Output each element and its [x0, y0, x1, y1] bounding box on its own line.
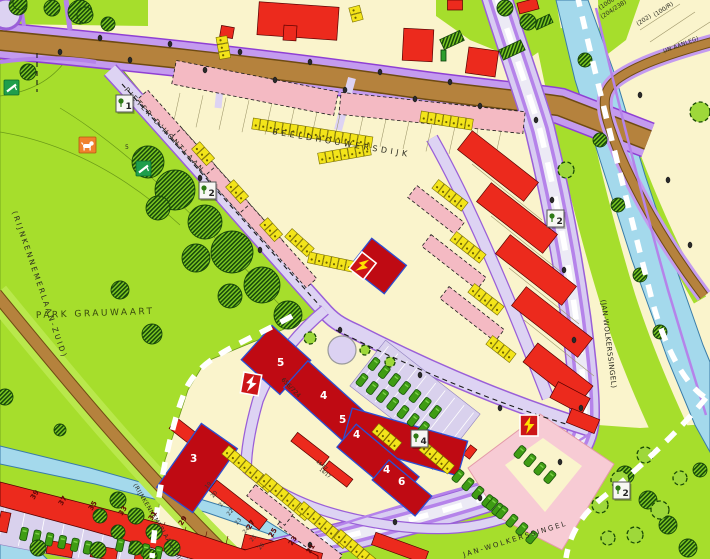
map-marker: 2 [547, 210, 566, 229]
lamp-post-icon [203, 67, 207, 73]
parking-stall [216, 36, 228, 45]
lamp-post-icon [579, 405, 583, 411]
building-red [283, 25, 297, 41]
lamp-post-icon [550, 197, 554, 203]
marker-number: 4 [421, 437, 427, 447]
tree-outlined [690, 102, 710, 122]
tree-hatched [111, 281, 129, 299]
tree-hatched [77, 7, 93, 23]
parking-stall [259, 119, 268, 131]
lamp-post-icon [58, 49, 62, 55]
lamp-post-icon [448, 79, 452, 85]
marker-number: 1 [126, 102, 132, 112]
map-marker: 2 [199, 182, 218, 201]
tree-hatched [54, 424, 66, 436]
marker-number: 2 [623, 489, 629, 499]
tree-hatched [146, 196, 170, 220]
lamp-post-icon [338, 327, 342, 333]
map-marker: 4 [411, 430, 430, 449]
lamp-post-icon [478, 103, 482, 109]
tree-hatched [128, 508, 144, 524]
tree-hatched [20, 64, 36, 80]
tree-hatched [520, 14, 536, 30]
map-marker: 2 [613, 482, 632, 501]
tree-glyph-icon [615, 485, 620, 490]
tree-outlined [651, 501, 669, 519]
lamp-post-icon [413, 96, 417, 102]
tree-hatched [188, 205, 222, 239]
lamp-post-icon [666, 177, 670, 183]
marker-number: 2 [557, 217, 563, 227]
tree-hatched [101, 17, 115, 31]
parking-stall [340, 148, 349, 160]
traffic-sign-icon [441, 50, 446, 61]
tree-hatched [90, 542, 106, 558]
tree-outlined [385, 357, 395, 367]
map-marker: 1 [116, 95, 135, 114]
tree-hatched [0, 389, 13, 405]
storey-number: 4 [320, 390, 327, 402]
lamp-post-icon [238, 49, 242, 55]
tree-glyph-icon [413, 433, 418, 438]
tree-outlined [673, 471, 687, 485]
tree-hatched [274, 301, 302, 329]
turning-circle [328, 336, 356, 364]
tree-outlined [627, 527, 643, 543]
parking-stall [325, 151, 334, 163]
parking-stall [219, 51, 231, 60]
storey-number: 5 [339, 414, 346, 426]
lamp-post-icon [478, 495, 482, 501]
parking-stall [420, 111, 429, 123]
lamp-post-icon [688, 242, 692, 248]
tree-glyph-icon [118, 98, 123, 103]
playground-icon [4, 80, 19, 95]
playground-icon [136, 161, 151, 176]
building-red [257, 2, 339, 41]
dog-walking-area-icon [79, 137, 96, 153]
lamp-post-icon [258, 247, 262, 253]
tree-hatched [211, 231, 253, 273]
lamp-post-icon [308, 59, 312, 65]
tree-hatched [679, 539, 697, 557]
map-canvas[interactable]: BEELDHOUWERSDIJKPIETER-D'HONTLAANPARK GR… [0, 0, 710, 559]
lamp-post-icon [418, 372, 422, 378]
tree-hatched [593, 133, 607, 147]
parking-stall [333, 149, 342, 161]
lamp-post-icon [198, 175, 202, 181]
storey-number: 5 [277, 357, 284, 369]
parcel-label: 5 [125, 144, 129, 151]
lamp-post-icon [562, 267, 566, 273]
parking-stall [450, 116, 459, 128]
tree-outlined [558, 162, 574, 178]
marker-number: 2 [209, 189, 215, 199]
tree-hatched [93, 509, 107, 523]
lamp-post-icon [128, 57, 132, 63]
lamp-post-icon [498, 405, 502, 411]
lamp-post-icon [168, 41, 172, 47]
tree-hatched [218, 284, 242, 308]
lamp-post-icon [273, 77, 277, 83]
tree-hatched [30, 540, 46, 556]
tree-hatched [693, 463, 707, 477]
tree-hatched [111, 525, 125, 539]
lamp-post-icon [343, 87, 347, 93]
transformer-lightning-icon [520, 415, 538, 436]
tree-outlined [601, 531, 615, 545]
lamp-post-icon [572, 337, 576, 343]
tree-hatched [182, 244, 210, 272]
tree-hatched [129, 541, 143, 555]
parking-stall [252, 118, 261, 130]
parking-stall [217, 43, 229, 52]
building-red [465, 47, 498, 77]
parking-stall [318, 152, 327, 164]
transformer-lightning-icon [240, 372, 261, 396]
building-red [448, 0, 463, 10]
tree-hatched [44, 0, 60, 16]
lamp-post-icon [378, 69, 382, 75]
building-red [402, 28, 434, 62]
parking-stall [435, 113, 444, 125]
parking-stall [457, 117, 466, 129]
tree-outlined [360, 345, 370, 355]
storey-number: 4 [353, 429, 360, 441]
tree-hatched [13, 0, 27, 10]
map-viewport[interactable]: BEELDHOUWERSDIJKPIETER-D'HONTLAANPARK GR… [0, 0, 710, 559]
parking-stall [442, 115, 451, 127]
lamp-post-icon [534, 117, 538, 123]
storey-number: 6 [398, 476, 405, 488]
tree-hatched [142, 324, 162, 344]
parking-stall [427, 112, 436, 124]
parking-stall [465, 118, 474, 130]
lamp-post-icon [638, 92, 642, 98]
tree-hatched [244, 267, 280, 303]
lamp-post-icon [98, 35, 102, 41]
storey-number: 3 [190, 453, 197, 465]
tree-glyph-icon [201, 185, 206, 190]
tree-hatched [497, 0, 513, 16]
tree-hatched [611, 198, 625, 212]
tree-outlined [304, 332, 316, 344]
tree-hatched [578, 53, 592, 67]
storey-number: 4 [383, 464, 390, 476]
lamp-post-icon [393, 519, 397, 525]
tree-glyph-icon [549, 213, 554, 218]
lamp-post-icon [558, 459, 562, 465]
